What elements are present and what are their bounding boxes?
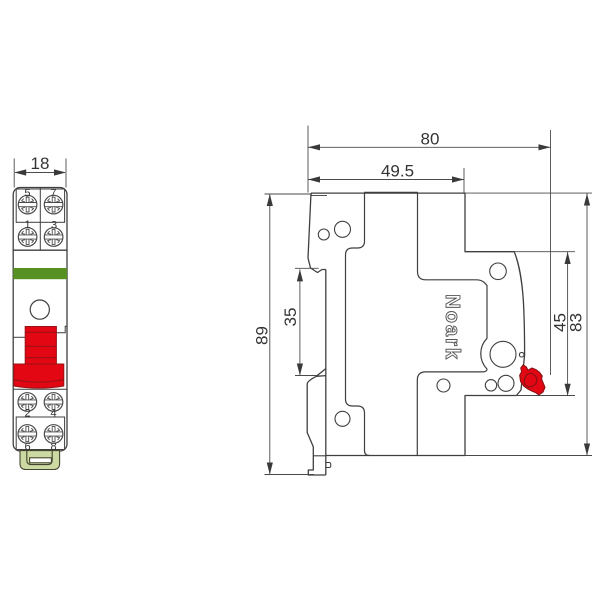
svg-text:89: 89 xyxy=(252,326,271,345)
svg-text:Noark: Noark xyxy=(441,294,463,361)
svg-text:5: 5 xyxy=(24,188,30,200)
svg-text:49.5: 49.5 xyxy=(381,162,414,181)
svg-text:83: 83 xyxy=(567,313,586,332)
svg-text:18: 18 xyxy=(31,154,50,173)
svg-text:1: 1 xyxy=(24,219,30,231)
svg-text:2: 2 xyxy=(24,408,30,420)
svg-text:3: 3 xyxy=(51,219,57,231)
svg-text:7: 7 xyxy=(50,188,56,200)
svg-text:4: 4 xyxy=(50,408,56,420)
svg-text:80: 80 xyxy=(421,130,440,149)
svg-text:35: 35 xyxy=(281,308,300,327)
